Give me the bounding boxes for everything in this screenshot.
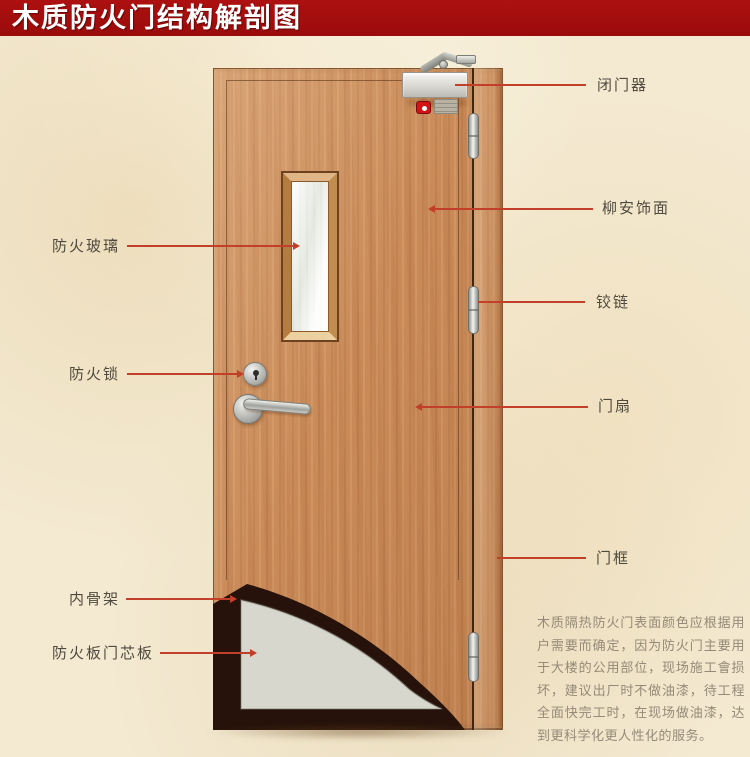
hinge-middle [468, 286, 479, 334]
callout-line-core-board [160, 652, 250, 654]
fire-glass-window [283, 173, 337, 340]
callout-line-door-frame [497, 557, 586, 559]
door-frame-edge [474, 68, 503, 730]
callout-line-fire-glass [127, 245, 293, 247]
fire-lock-cylinder [243, 362, 267, 386]
callout-line-veneer [434, 208, 593, 210]
callout-line-hinge [478, 301, 585, 303]
callout-arrow-inner-skeleton [230, 595, 237, 603]
label-door-leaf: 门扇 [598, 399, 632, 415]
page-title: 木质防火门结构解剖图 [12, 0, 302, 36]
label-door-closer: 闭门器 [597, 78, 648, 94]
title-banner: 木质防火门结构解剖图 [0, 0, 750, 36]
glass-pane [291, 181, 329, 332]
callout-line-door-leaf [421, 406, 588, 408]
label-inner-skeleton: 内骨架 [40, 592, 120, 608]
label-hinge: 铰链 [596, 295, 630, 311]
label-core-board: 防火板门芯板 [40, 646, 154, 662]
label-fire-glass: 防火玻璃 [40, 239, 120, 255]
callout-line-door-closer [455, 84, 586, 86]
label-veneer: 柳安饰面 [602, 201, 670, 217]
door-panel-outline [226, 80, 459, 580]
callout-arrow-fire-glass [293, 242, 300, 250]
core-board-panel [241, 600, 442, 709]
door-closer-pivot [439, 60, 448, 69]
alarm-indicator [416, 101, 431, 114]
door-illustration [213, 57, 505, 747]
callout-line-inner-skeleton [126, 598, 230, 600]
label-plate [434, 99, 458, 114]
floor-shadow [203, 726, 515, 740]
alarm-indicator-dot [422, 106, 427, 111]
callout-arrow-core-board [250, 649, 257, 657]
callout-line-fire-lock [127, 373, 237, 375]
door-closer-mount [456, 55, 476, 64]
keyhole-stem [255, 374, 257, 380]
page: { "title": "木质防火门结构解剖图", "colors": { "ba… [0, 0, 750, 757]
hinge-bottom [468, 632, 479, 682]
label-door-frame: 门框 [596, 551, 630, 567]
callout-arrow-fire-lock [237, 370, 244, 378]
hinge-top [468, 113, 479, 159]
description-paragraph: 木质隔热防火门表面颜色应根据用户需要而确定，因为防火门主要用于大楼的公用部位，现… [537, 612, 745, 747]
label-fire-lock: 防火锁 [40, 367, 120, 383]
